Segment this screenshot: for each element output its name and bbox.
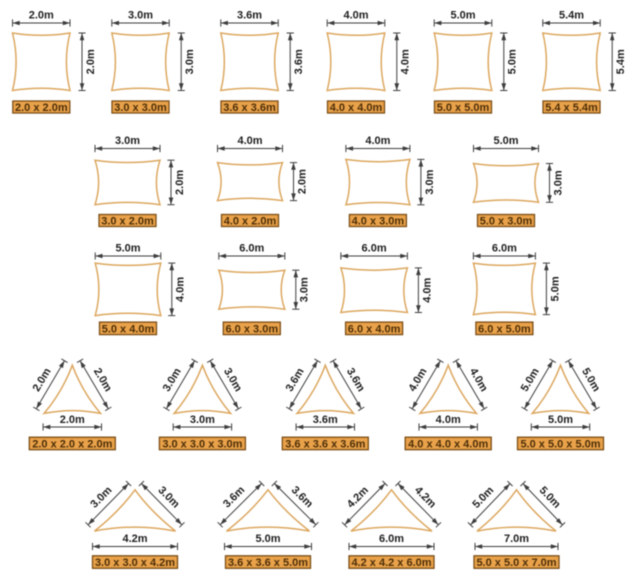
svg-text:3.0 x 2.0m: 3.0 x 2.0m <box>101 216 154 228</box>
svg-text:2.0m: 2.0m <box>296 169 308 194</box>
svg-text:4.0m: 4.0m <box>365 135 390 147</box>
svg-text:5.0m: 5.0m <box>255 533 280 545</box>
svg-text:4.2m: 4.2m <box>345 484 371 510</box>
svg-text:3.6m: 3.6m <box>289 484 315 510</box>
svg-text:3.6 x 3.6 x 5.0m: 3.6 x 3.6 x 5.0m <box>228 557 308 569</box>
svg-text:5.0m: 5.0m <box>115 243 140 255</box>
svg-text:4.0m: 4.0m <box>237 135 262 147</box>
svg-text:3.0m: 3.0m <box>190 414 215 426</box>
svg-text:3.0m: 3.0m <box>424 169 436 194</box>
svg-text:4.0m: 4.0m <box>406 366 429 394</box>
svg-text:2.0m: 2.0m <box>29 10 54 22</box>
svg-text:5.0 x 5.0m: 5.0 x 5.0m <box>437 102 490 114</box>
svg-text:3.6m: 3.6m <box>293 49 305 74</box>
svg-text:5.0 x 5.0 x 7.0m: 5.0 x 5.0 x 7.0m <box>476 557 556 569</box>
svg-text:4.0m: 4.0m <box>436 414 461 426</box>
svg-text:2.0m: 2.0m <box>91 366 114 394</box>
svg-text:3.6m: 3.6m <box>221 484 247 510</box>
svg-text:6.0m: 6.0m <box>362 243 387 255</box>
svg-text:4.0m: 4.0m <box>175 277 187 302</box>
svg-text:2.0m: 2.0m <box>60 414 85 426</box>
svg-text:4.0 x 3.0m: 4.0 x 3.0m <box>352 216 405 228</box>
svg-text:2.0m: 2.0m <box>174 170 186 195</box>
svg-text:5.0m: 5.0m <box>450 10 475 22</box>
svg-text:3.6m: 3.6m <box>284 366 307 394</box>
svg-text:3.6m: 3.6m <box>313 414 338 426</box>
svg-text:4.0m: 4.0m <box>343 10 368 22</box>
svg-text:3.0m: 3.0m <box>221 366 244 394</box>
svg-text:4.2m: 4.2m <box>412 484 438 510</box>
svg-text:3.6 x 3.6m: 3.6 x 3.6m <box>223 102 276 114</box>
svg-text:5.0m: 5.0m <box>493 135 518 147</box>
svg-text:6.0 x 5.0m: 6.0 x 5.0m <box>478 323 531 335</box>
svg-text:3.0 x 3.0m: 3.0 x 3.0m <box>114 102 167 114</box>
svg-text:3.6m: 3.6m <box>237 10 262 22</box>
svg-text:4.0 x 4.0 x 4.0m: 4.0 x 4.0 x 4.0m <box>408 439 488 451</box>
svg-text:2.0 x 2.0 x 2.0m: 2.0 x 2.0 x 2.0m <box>32 439 112 451</box>
svg-text:2.0m: 2.0m <box>31 366 54 394</box>
svg-text:6.0 x 4.0m: 6.0 x 4.0m <box>348 323 401 335</box>
svg-text:5.0 x 5.0 x 5.0m: 5.0 x 5.0 x 5.0m <box>520 439 600 451</box>
svg-text:2.0m: 2.0m <box>85 49 97 74</box>
svg-text:5.4 x 5.4m: 5.4 x 5.4m <box>545 102 598 114</box>
svg-text:5.4m: 5.4m <box>559 10 584 22</box>
svg-text:5.0m: 5.0m <box>548 414 573 426</box>
svg-text:3.0m: 3.0m <box>161 366 184 394</box>
svg-text:3.0m: 3.0m <box>299 277 311 302</box>
svg-text:5.0m: 5.0m <box>507 49 519 74</box>
svg-text:2.0 x 2.0m: 2.0 x 2.0m <box>15 102 68 114</box>
svg-text:3.6m: 3.6m <box>344 366 367 394</box>
svg-text:6.0m: 6.0m <box>379 533 404 545</box>
svg-text:5.0m: 5.0m <box>549 276 561 301</box>
svg-text:4.0 x 2.0m: 4.0 x 2.0m <box>224 216 277 228</box>
svg-text:3.6 x 3.6 x 3.6m: 3.6 x 3.6 x 3.6m <box>285 439 365 451</box>
svg-text:3.0m: 3.0m <box>156 484 182 510</box>
svg-text:4.0m: 4.0m <box>400 49 412 74</box>
svg-text:5.0m: 5.0m <box>519 366 542 394</box>
svg-text:5.0 x 4.0m: 5.0 x 4.0m <box>102 323 155 335</box>
svg-text:5.0m: 5.0m <box>470 484 496 511</box>
svg-text:5.0m: 5.0m <box>537 484 563 511</box>
svg-text:7.0m: 7.0m <box>504 533 529 545</box>
svg-text:5.0 x 3.0m: 5.0 x 3.0m <box>480 216 533 228</box>
svg-text:4.2 x 4.2 x 6.0m: 4.2 x 4.2 x 6.0m <box>351 557 431 569</box>
svg-text:4.0m: 4.0m <box>467 366 490 394</box>
svg-text:4.2m: 4.2m <box>122 533 147 545</box>
svg-text:6.0m: 6.0m <box>492 243 517 255</box>
svg-text:3.0m: 3.0m <box>88 484 114 510</box>
svg-text:3.0m: 3.0m <box>128 10 153 22</box>
svg-text:3.0m: 3.0m <box>552 170 564 195</box>
svg-text:4.0 x 4.0m: 4.0 x 4.0m <box>330 102 383 114</box>
svg-text:3.0 x 3.0 x 3.0m: 3.0 x 3.0 x 3.0m <box>162 439 242 451</box>
svg-text:4.0m: 4.0m <box>421 277 433 302</box>
svg-text:5.0m: 5.0m <box>579 366 602 394</box>
svg-text:5.4m: 5.4m <box>615 49 627 74</box>
svg-text:3.0 x 3.0 x 4.2m: 3.0 x 3.0 x 4.2m <box>95 557 175 569</box>
svg-text:3.0m: 3.0m <box>184 49 196 74</box>
svg-text:3.0m: 3.0m <box>115 135 140 147</box>
svg-text:6.0m: 6.0m <box>239 243 264 255</box>
svg-text:6.0 x 3.0m: 6.0 x 3.0m <box>226 323 279 335</box>
